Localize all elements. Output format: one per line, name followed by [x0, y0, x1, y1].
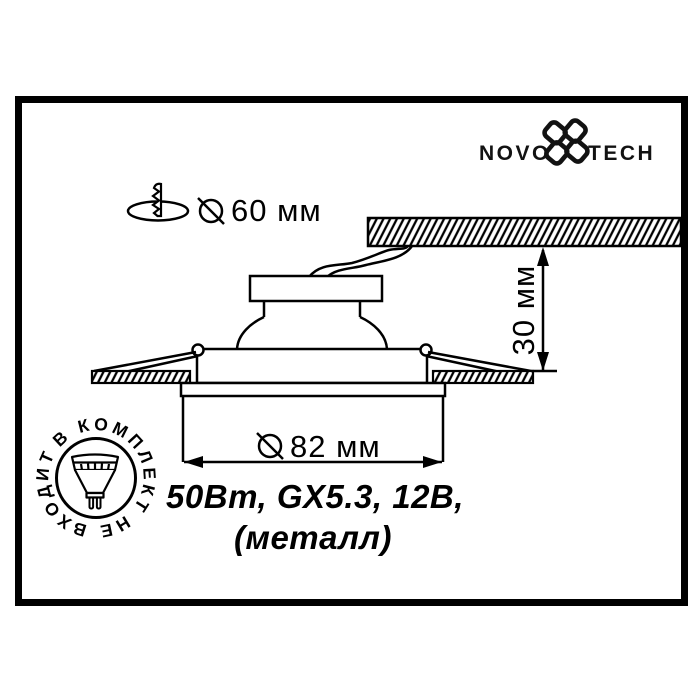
face-diameter-label: 82 мм	[290, 429, 381, 464]
recess-depth-dimension: 30 мм	[506, 247, 557, 371]
spring-clip-left	[94, 352, 198, 372]
cutout-diameter-annotation: 60 мм	[198, 193, 322, 228]
lamp-housing-block	[250, 276, 382, 301]
diameter-symbol-icon	[257, 433, 283, 459]
ceiling-cut-left	[92, 371, 190, 383]
arrowhead-up-icon	[537, 247, 549, 266]
spec-line-1: 50Вт, GX5.3, 12В,	[166, 478, 464, 515]
arrowhead-left-icon	[184, 456, 203, 468]
trim-plate	[181, 383, 445, 396]
ceiling-cut-right	[433, 371, 533, 383]
logo-text-novo: NOVO	[479, 142, 551, 165]
arrowhead-right-icon	[423, 456, 442, 468]
power-wire	[309, 246, 412, 277]
screw-icon	[153, 184, 161, 216]
housing-neck	[264, 301, 360, 317]
clip-pivot-left	[193, 345, 204, 356]
technical-drawing: NOVO TECH 60 мм	[0, 0, 700, 700]
novotech-flower-icon	[543, 119, 590, 166]
not-included-badge: В КОМПЛЕКТ НЕ ВХОДИТ	[32, 414, 160, 542]
diagram-page: NOVO TECH 60 мм	[0, 0, 700, 700]
fixture-bell	[237, 317, 387, 349]
face-diameter-dimension: 82 мм	[184, 429, 442, 468]
ceiling-slab	[368, 218, 681, 246]
spec-line-2: (металл)	[234, 519, 392, 556]
logo-text-tech: TECH	[588, 142, 655, 165]
cutout-diameter-label: 60 мм	[231, 193, 322, 228]
diameter-symbol-icon	[198, 198, 224, 224]
trim-ring-body	[197, 349, 427, 383]
recess-depth-label: 30 мм	[506, 265, 541, 356]
clip-pivot-right	[421, 345, 432, 356]
novotech-logo: NOVO TECH	[479, 119, 655, 166]
ceiling-cutout-screw-icon	[128, 184, 188, 221]
